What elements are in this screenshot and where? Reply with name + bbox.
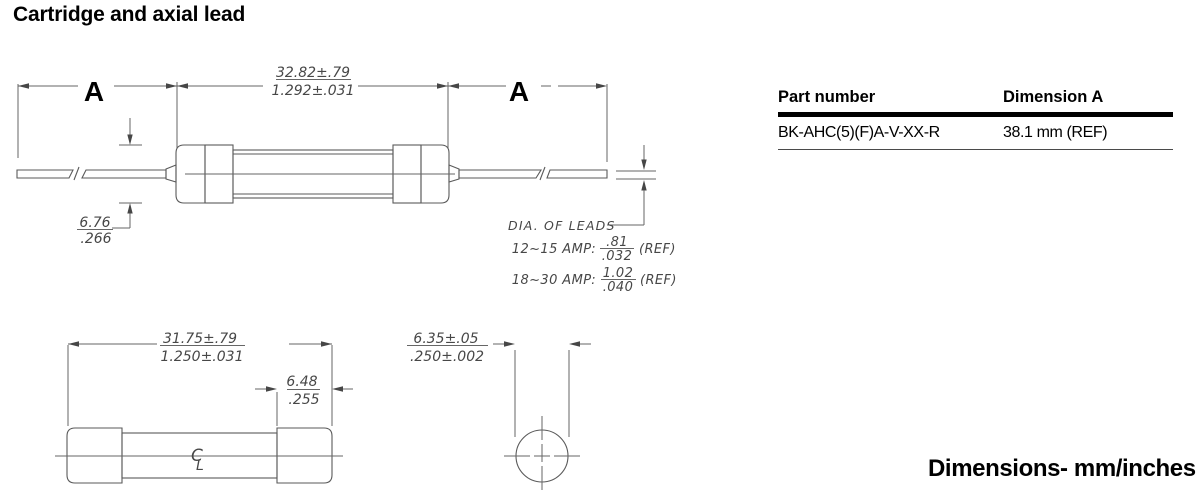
datasheet-page: Cartridge and axial lead bbox=[0, 0, 1200, 502]
dim-lead-length-left: A bbox=[18, 76, 177, 158]
centerline-symbol: L bbox=[196, 458, 204, 474]
part-number-value: BK-AHC(5)(F)A-V-XX-R bbox=[778, 124, 1003, 142]
body-length-mm: 32.82±.79 bbox=[276, 65, 350, 81]
left-lead-segment bbox=[82, 170, 166, 178]
dim-cap-diameter: 6.76 .266 bbox=[77, 118, 142, 247]
col-header-part-number: Part number bbox=[778, 88, 1003, 107]
dia-mm: 6.35±.05 bbox=[413, 331, 478, 347]
cap-dia-mm: 6.76 bbox=[79, 215, 110, 231]
dimension-a-value: 38.1 mm (REF) bbox=[1003, 124, 1107, 142]
dim-body-length: 32.82±.79 1.292±.031 bbox=[177, 65, 448, 148]
right-lead-segment bbox=[459, 170, 541, 178]
lead-note-label: DIA. OF LEADS bbox=[508, 218, 616, 233]
dim-lead-diameter bbox=[607, 145, 656, 225]
ref-note: (REF) bbox=[639, 242, 676, 257]
table-row: BK-AHC(5)(F)A-V-XX-R 38.1 mm (REF) bbox=[778, 124, 1173, 142]
fuse-body-outline: C L bbox=[55, 428, 343, 483]
lead-break-mark bbox=[540, 167, 545, 180]
body-length-in: 1.292±.031 bbox=[272, 83, 355, 99]
lead-dia-mm: 1.02 bbox=[603, 266, 634, 281]
dimension-a-label: A bbox=[84, 76, 104, 107]
cap-dia-in: .266 bbox=[80, 231, 111, 247]
table-header-row: Part number Dimension A bbox=[778, 88, 1173, 107]
dimension-a-label: A bbox=[509, 76, 529, 107]
lead-dia-in: .032 bbox=[602, 249, 633, 264]
page-title: Cartridge and axial lead bbox=[13, 3, 245, 27]
table-header-rule bbox=[778, 112, 1173, 117]
cap-length-in: .255 bbox=[288, 392, 319, 408]
left-lead-segment bbox=[17, 170, 73, 178]
amp-range: 18~30 AMP: bbox=[512, 273, 596, 288]
ref-note: (REF) bbox=[640, 273, 677, 288]
amp-range: 12~15 AMP: bbox=[512, 242, 596, 257]
col-header-dimension-a: Dimension A bbox=[1003, 88, 1103, 107]
lead-diameter-note: DIA. OF LEADS 12~15 AMP: .81 .032 (REF) … bbox=[508, 218, 677, 295]
body-length-in: 1.250±.031 bbox=[161, 349, 244, 365]
dia-in: .250±.002 bbox=[410, 349, 484, 365]
lead-dia-in: .040 bbox=[603, 280, 634, 295]
cap-length-mm: 6.48 bbox=[286, 374, 317, 390]
units-note: Dimensions- mm/inches bbox=[928, 455, 1196, 483]
dim-cap-length: 6.48 .255 bbox=[255, 374, 353, 426]
table-bottom-rule bbox=[778, 149, 1173, 150]
dim-lead-length-right: A bbox=[448, 76, 607, 162]
top-view-drawing: A 32.82±.79 1.292±.031 A bbox=[0, 60, 700, 320]
dim-diameter: 6.35±.05 .250±.002 bbox=[407, 331, 591, 437]
part-table: Part number Dimension A BK-AHC(5)(F)A-V-… bbox=[778, 88, 1173, 150]
body-length-mm: 31.75±.79 bbox=[163, 331, 237, 347]
end-view-drawing: 6.35±.05 .250±.002 bbox=[390, 320, 620, 502]
right-lead-segment bbox=[547, 170, 607, 178]
side-view-drawing: 31.75±.79 1.250±.031 6.48 .255 C L bbox=[40, 320, 390, 502]
left-lead-taper bbox=[166, 165, 176, 182]
fuse-outline bbox=[17, 145, 607, 203]
lead-break-mark bbox=[74, 167, 79, 180]
lead-dia-mm: .81 bbox=[606, 235, 628, 250]
